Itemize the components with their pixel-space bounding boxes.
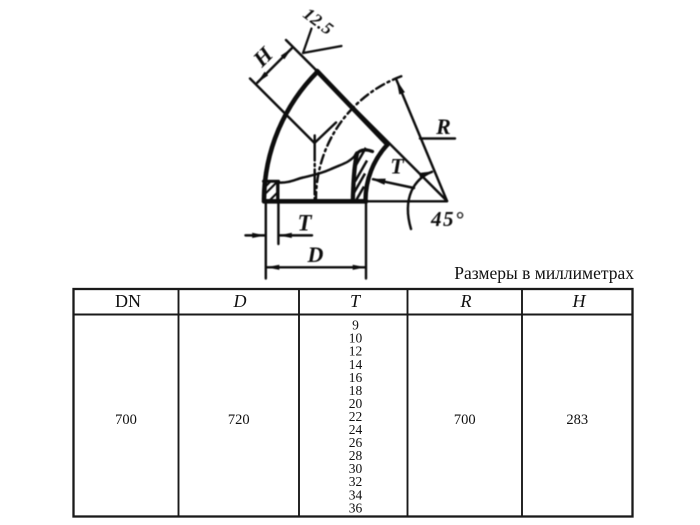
svg-text:DN: DN bbox=[115, 291, 141, 311]
svg-text:720: 720 bbox=[228, 412, 250, 428]
svg-text:T: T bbox=[350, 291, 362, 311]
svg-text:36: 36 bbox=[349, 500, 363, 515]
svg-text:D: D bbox=[307, 242, 324, 267]
svg-text:12.5: 12.5 bbox=[300, 3, 338, 39]
svg-text:R: R bbox=[460, 291, 472, 311]
svg-text:T: T bbox=[390, 154, 405, 179]
svg-text:D: D bbox=[233, 291, 247, 311]
svg-text:700: 700 bbox=[115, 412, 137, 428]
svg-text:R: R bbox=[435, 114, 451, 139]
svg-text:700: 700 bbox=[454, 412, 476, 428]
svg-text:H: H bbox=[572, 291, 587, 311]
svg-text:45°: 45° bbox=[430, 207, 465, 231]
svg-text:283: 283 bbox=[566, 412, 588, 428]
svg-text:Размеры в миллиметрах: Размеры в миллиметрах bbox=[454, 263, 634, 283]
svg-text:T: T bbox=[297, 211, 312, 236]
